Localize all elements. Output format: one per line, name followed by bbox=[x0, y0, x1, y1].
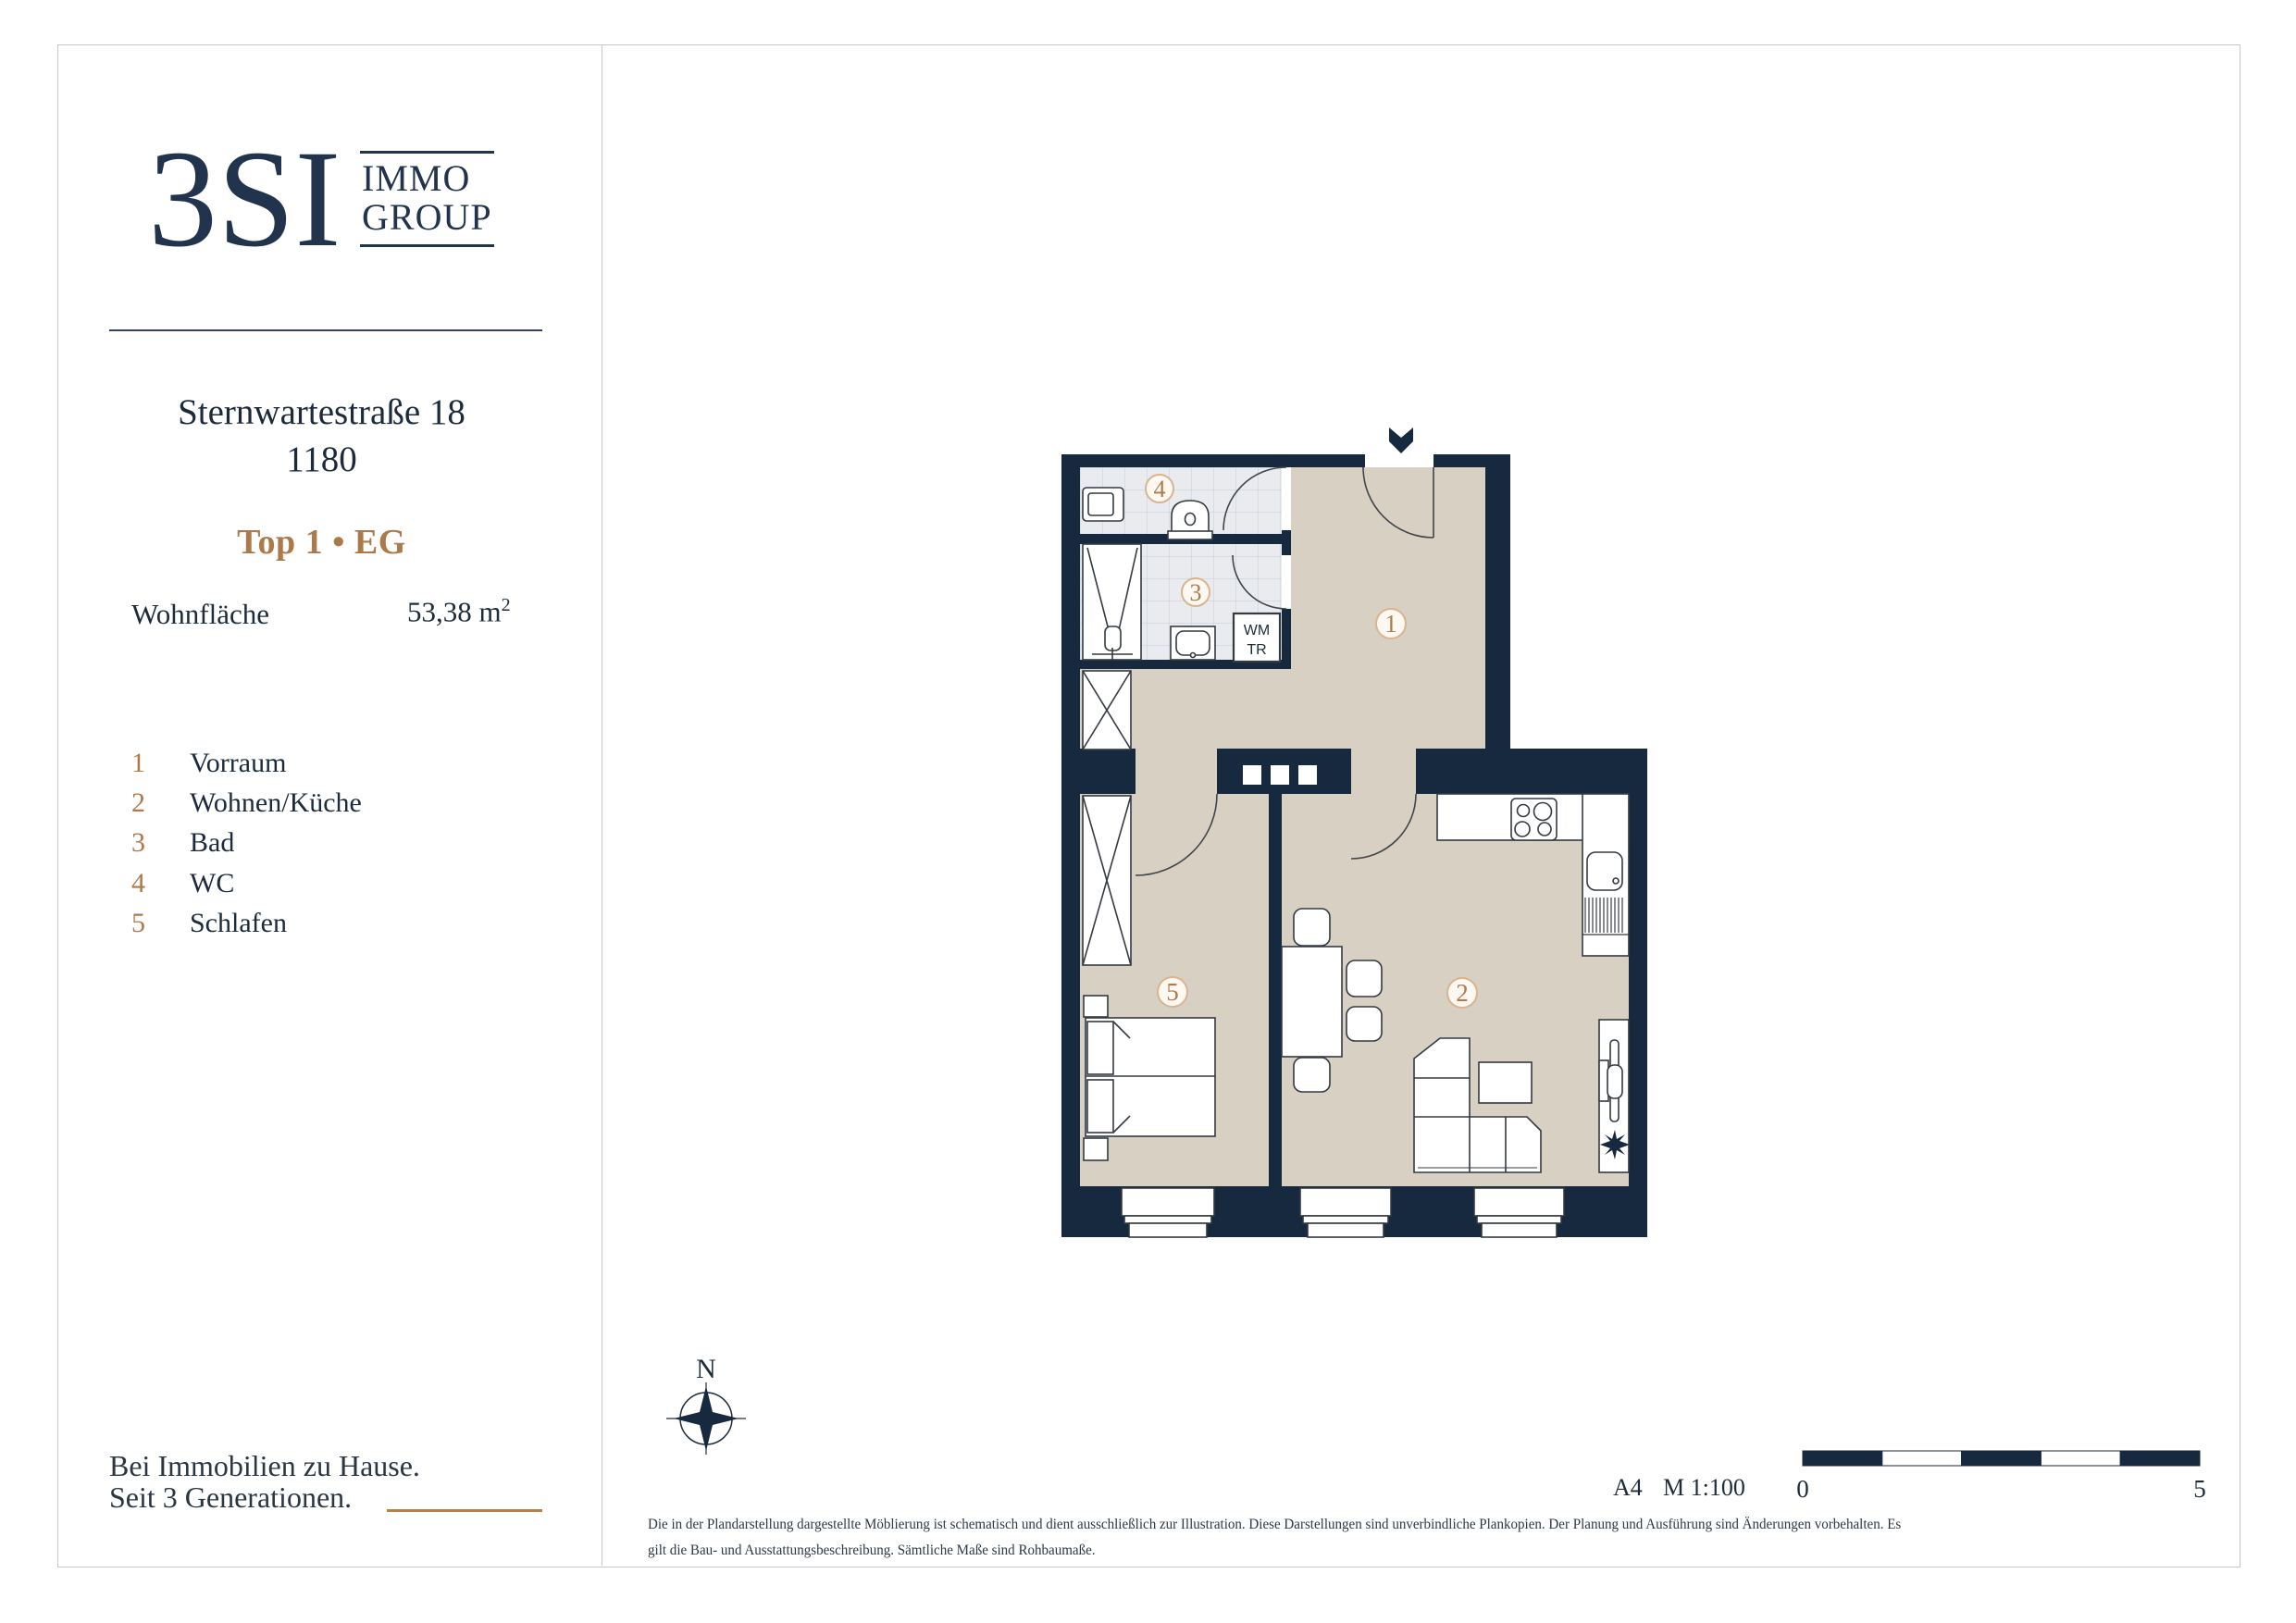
badge-wohnen: 2 bbox=[1447, 978, 1477, 1008]
wc-washbasin bbox=[1083, 488, 1123, 521]
chair bbox=[1347, 1007, 1382, 1041]
kitchen-sink bbox=[1587, 852, 1622, 890]
pillow bbox=[1087, 1080, 1113, 1133]
chair bbox=[1347, 960, 1382, 997]
wall-right bbox=[1629, 794, 1647, 1237]
wall-room-divider bbox=[1269, 794, 1282, 1186]
badge-bad: 3 bbox=[1182, 578, 1210, 606]
door-gap-wohnen bbox=[1351, 749, 1416, 794]
badge-schlafen: 5 bbox=[1158, 977, 1187, 1007]
badge-vorraum: 1 bbox=[1376, 609, 1406, 638]
entrance-arrow-icon bbox=[1389, 427, 1413, 453]
entrance-threshold bbox=[1365, 454, 1433, 467]
wall-band-left bbox=[1080, 749, 1136, 794]
wardrobe-schlafen bbox=[1083, 796, 1131, 965]
compass-rose: N bbox=[666, 1354, 746, 1455]
bed bbox=[1086, 1018, 1215, 1136]
floorplan-page: 3SI IMMO GROUP Sternwartestraße 18 1180 … bbox=[0, 0, 2296, 1623]
nightstand-bottom bbox=[1084, 1138, 1108, 1160]
pillow bbox=[1087, 1022, 1113, 1074]
nightstand-top bbox=[1084, 996, 1108, 1017]
wm-label: WM bbox=[1244, 623, 1270, 638]
window-wohnen-right bbox=[1474, 1188, 1564, 1237]
coffee-table bbox=[1479, 1062, 1532, 1103]
badge-wc: 4 bbox=[1146, 475, 1173, 502]
shaft-icon bbox=[1243, 765, 1317, 785]
svg-text:1: 1 bbox=[1384, 610, 1397, 638]
wall-top-left bbox=[1061, 454, 1365, 467]
wall-vorraum-right bbox=[1485, 454, 1510, 749]
chair bbox=[1294, 1058, 1330, 1092]
svg-text:3: 3 bbox=[1190, 579, 1202, 606]
dining-table bbox=[1282, 947, 1342, 1057]
compass-n-label: N bbox=[696, 1354, 716, 1384]
door-gap-schlafen bbox=[1136, 749, 1217, 794]
svg-text:5: 5 bbox=[1166, 978, 1179, 1006]
floorplan-drawing: WM TR 1 2 3 4 5 bbox=[0, 0, 2296, 1623]
wall-left bbox=[1061, 454, 1080, 1237]
wardrobe-corridor bbox=[1083, 671, 1131, 750]
scale-end-label: 5 bbox=[2193, 1475, 2206, 1503]
floor-vorraum bbox=[1291, 467, 1485, 749]
tr-label: TR bbox=[1247, 642, 1266, 658]
wall-stub-1 bbox=[1282, 530, 1291, 555]
wall-stub-2 bbox=[1282, 609, 1291, 669]
stove-icon bbox=[1511, 799, 1557, 840]
svg-text:4: 4 bbox=[1154, 476, 1166, 502]
shower bbox=[1083, 544, 1141, 660]
window-schlafen bbox=[1122, 1188, 1214, 1237]
chair bbox=[1294, 909, 1330, 946]
compass-star-icon bbox=[674, 1386, 738, 1451]
scale-ratio-label: M 1:100 bbox=[1663, 1474, 1745, 1501]
wall-band-right bbox=[1416, 749, 1647, 794]
svg-text:2: 2 bbox=[1456, 979, 1469, 1007]
scale-bar: A4 M 1:100 0 5 bbox=[1613, 1451, 2206, 1503]
scale-start-label: 0 bbox=[1796, 1475, 1809, 1503]
window-wohnen-left bbox=[1300, 1188, 1391, 1237]
scale-sheet-label: A4 bbox=[1613, 1474, 1643, 1501]
toilet bbox=[1168, 501, 1212, 539]
bad-washbasin bbox=[1171, 626, 1215, 660]
